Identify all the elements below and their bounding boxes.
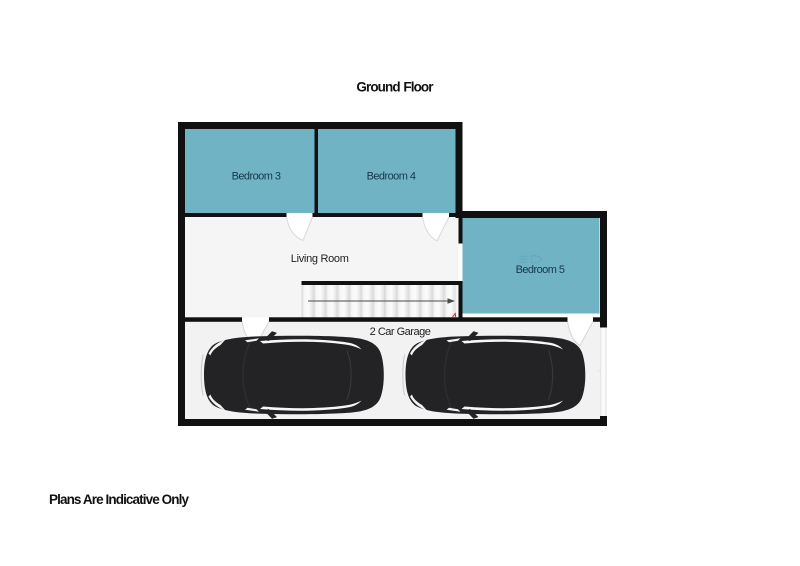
svg-text:2 Car Garage: 2 Car Garage: [370, 326, 431, 338]
svg-text:Living Room: Living Room: [291, 253, 349, 265]
svg-text:Ground Floor: Ground Floor: [356, 80, 434, 95]
svg-text:Bedroom 3: Bedroom 3: [232, 171, 281, 183]
svg-text:Plans Are Indicative Only: Plans Are Indicative Only: [49, 492, 189, 507]
svg-text:Bedroom 5: Bedroom 5: [516, 264, 565, 276]
svg-text:Bedroom 4: Bedroom 4: [367, 171, 416, 183]
